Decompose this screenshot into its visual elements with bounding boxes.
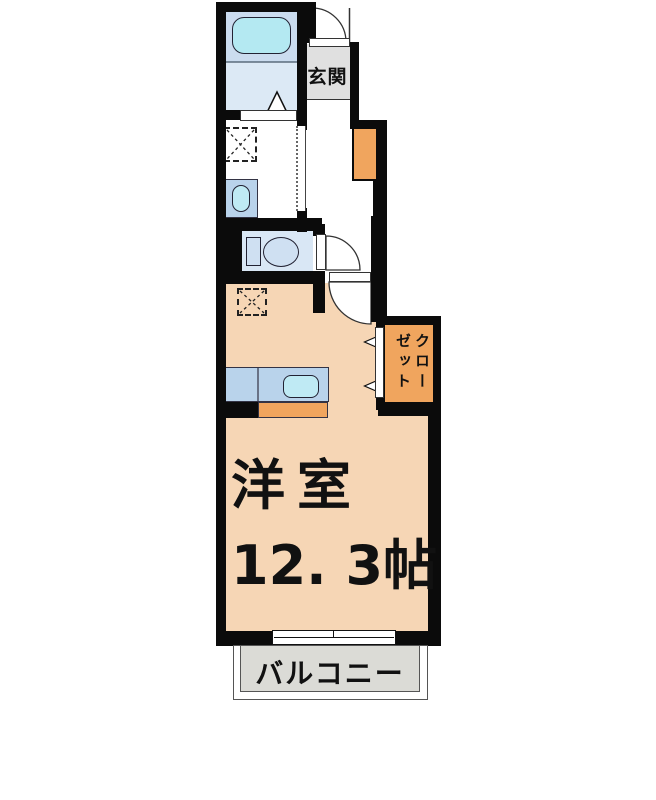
sliding-window-rail [274, 637, 394, 638]
closet-label-col-left: ゼット [393, 333, 412, 401]
door-swing-arc-icon [326, 236, 360, 270]
toilet-icon [263, 237, 299, 267]
kitchen-sink-icon [283, 375, 319, 398]
wall-hall-right-lower [371, 216, 387, 322]
wall-entrance-right [350, 42, 359, 129]
closet-door-strip [375, 327, 384, 398]
wall-bottom-right [394, 631, 441, 646]
shoe-cabinet [352, 127, 378, 181]
entrance-label: 玄関 [305, 62, 350, 89]
wall-main-top [216, 271, 325, 284]
bathroom-door-threshold [240, 110, 297, 121]
sliding-window-tick [333, 631, 334, 638]
kitchen-counter-front [258, 402, 328, 418]
main-room-name: 洋室 [231, 446, 441, 526]
main-room-size: 12. 3帖 [231, 526, 441, 606]
floorplan-canvas: 玄関 洋室 12. 3帖 クロー ゼット バルコニー [0, 0, 656, 800]
bathtub-icon [232, 17, 291, 54]
wall-bottom-left [216, 631, 274, 646]
door-swing-arc-icon [312, 8, 346, 42]
closet-label: クロー ゼット [389, 333, 431, 401]
wall-left [216, 2, 226, 646]
balcony-label: バルコニー [240, 652, 420, 692]
closet-label-col-right: クロー [412, 333, 431, 401]
washing-machine-space-icon [224, 127, 257, 162]
main-room-label: 洋室 12. 3帖 [231, 446, 441, 606]
toilet-tank [246, 237, 261, 266]
wall-main-top-stub [313, 283, 325, 313]
sliding-door-icon [296, 126, 306, 211]
refrigerator-space-icon [237, 288, 267, 316]
toilet-door-leaf [316, 234, 326, 270]
entrance-door-leaf [309, 38, 350, 47]
washbasin-icon [232, 185, 250, 212]
main-room-door-leaf [329, 272, 371, 282]
exterior-corner-patch [387, 271, 441, 317]
wall-bath-wash-divider [216, 110, 240, 120]
wall-entrance-left-stub [297, 2, 316, 43]
